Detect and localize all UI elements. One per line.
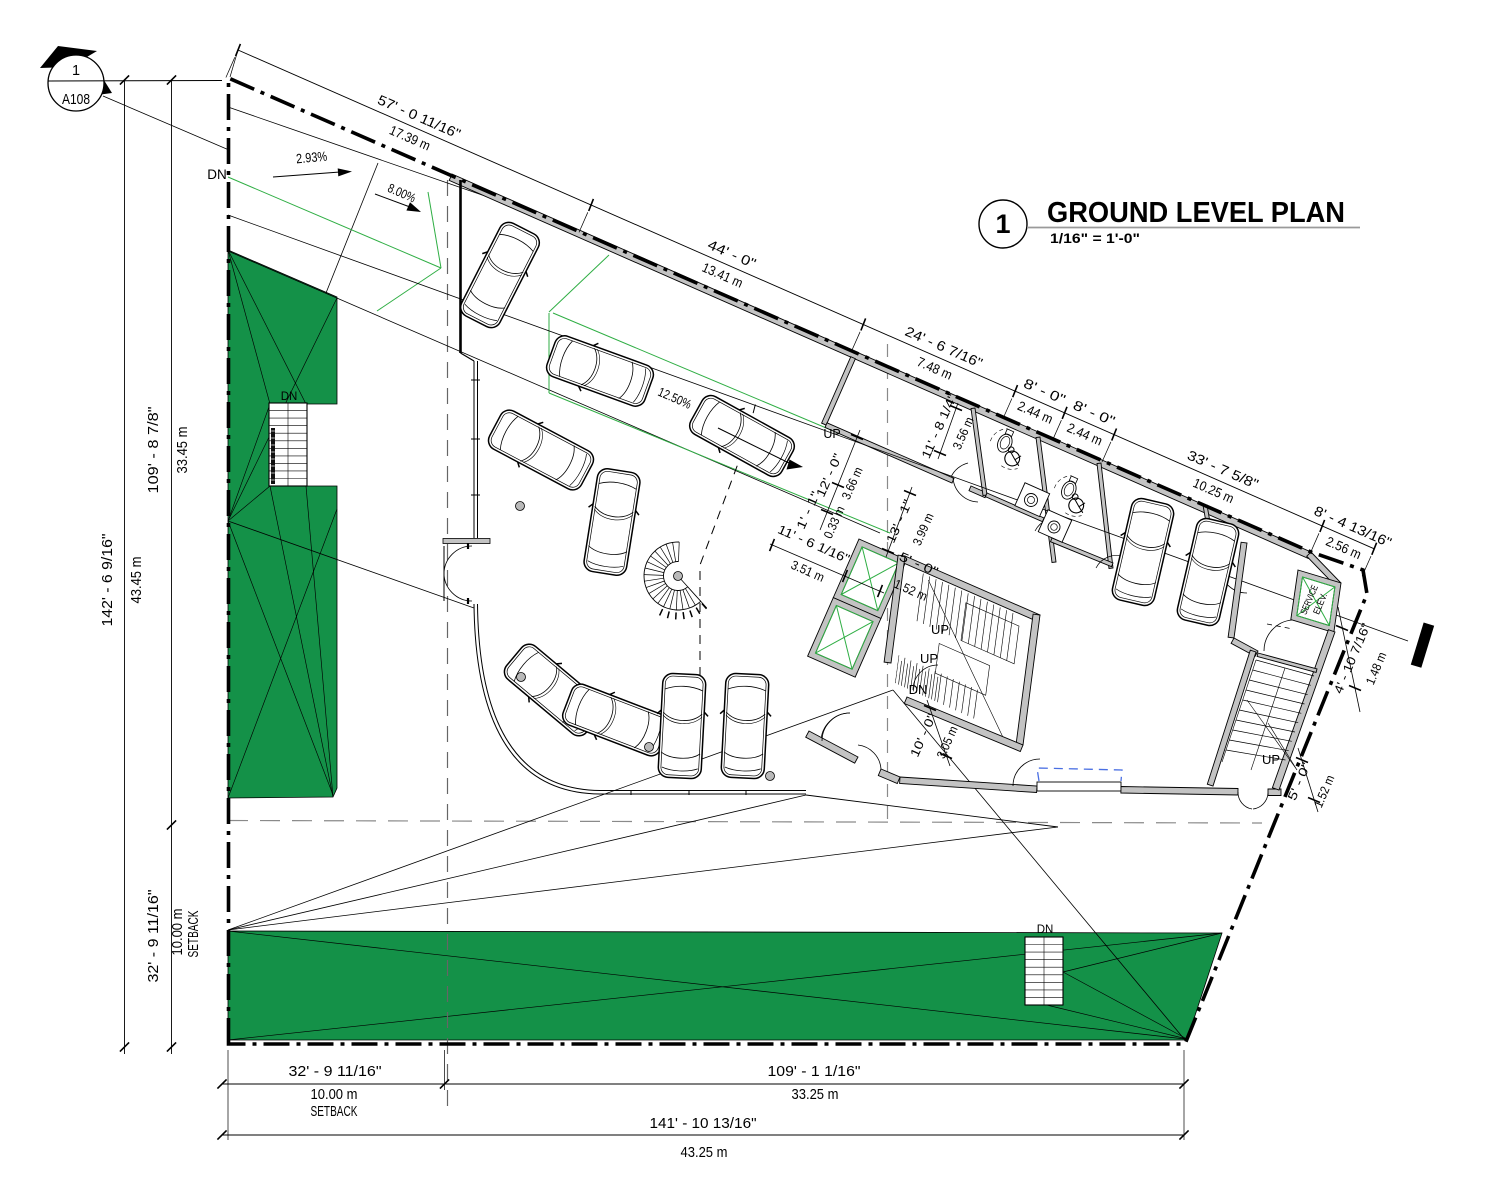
svg-text:33.25 m: 33.25 m bbox=[792, 1087, 839, 1103]
svg-text:32' - 9 11/16": 32' - 9 11/16" bbox=[289, 1064, 382, 1080]
svg-text:GROUND LEVEL PLAN: GROUND LEVEL PLAN bbox=[1047, 197, 1345, 229]
svg-text:1: 1 bbox=[995, 209, 1010, 239]
svg-text:10.00 m: 10.00 m bbox=[311, 1087, 358, 1103]
svg-text:1/16" = 1'-0": 1/16" = 1'-0" bbox=[1050, 230, 1140, 246]
svg-text:A108: A108 bbox=[62, 91, 90, 108]
svg-text:DN: DN bbox=[281, 391, 298, 403]
svg-text:SETBACK: SETBACK bbox=[311, 1104, 358, 1120]
svg-text:32' - 9 11/16": 32' - 9 11/16" bbox=[146, 890, 162, 983]
svg-text:DN: DN bbox=[207, 167, 227, 182]
svg-text:10.00 m: 10.00 m bbox=[170, 909, 186, 956]
svg-text:141' - 10 13/16": 141' - 10 13/16" bbox=[650, 1116, 757, 1132]
svg-text:43.45 m: 43.45 m bbox=[129, 557, 145, 604]
svg-text:SETBACK: SETBACK bbox=[186, 910, 202, 957]
svg-text:UP: UP bbox=[823, 427, 840, 441]
svg-text:UP: UP bbox=[931, 622, 949, 637]
svg-text:43.25 m: 43.25 m bbox=[681, 1145, 728, 1161]
svg-text:DN: DN bbox=[909, 682, 928, 697]
svg-text:2.93%: 2.93% bbox=[296, 149, 328, 167]
svg-text:109' - 8 7/8": 109' - 8 7/8" bbox=[146, 407, 162, 494]
svg-text:109' - 1 1/16": 109' - 1 1/16" bbox=[768, 1064, 861, 1080]
svg-text:UP: UP bbox=[1262, 752, 1280, 767]
svg-text:1: 1 bbox=[72, 63, 80, 79]
svg-text:33.45 m: 33.45 m bbox=[175, 427, 191, 474]
svg-text:UP: UP bbox=[920, 651, 938, 666]
svg-text:142' - 6 9/16": 142' - 6 9/16" bbox=[100, 534, 116, 627]
svg-text:DN: DN bbox=[1037, 924, 1054, 936]
